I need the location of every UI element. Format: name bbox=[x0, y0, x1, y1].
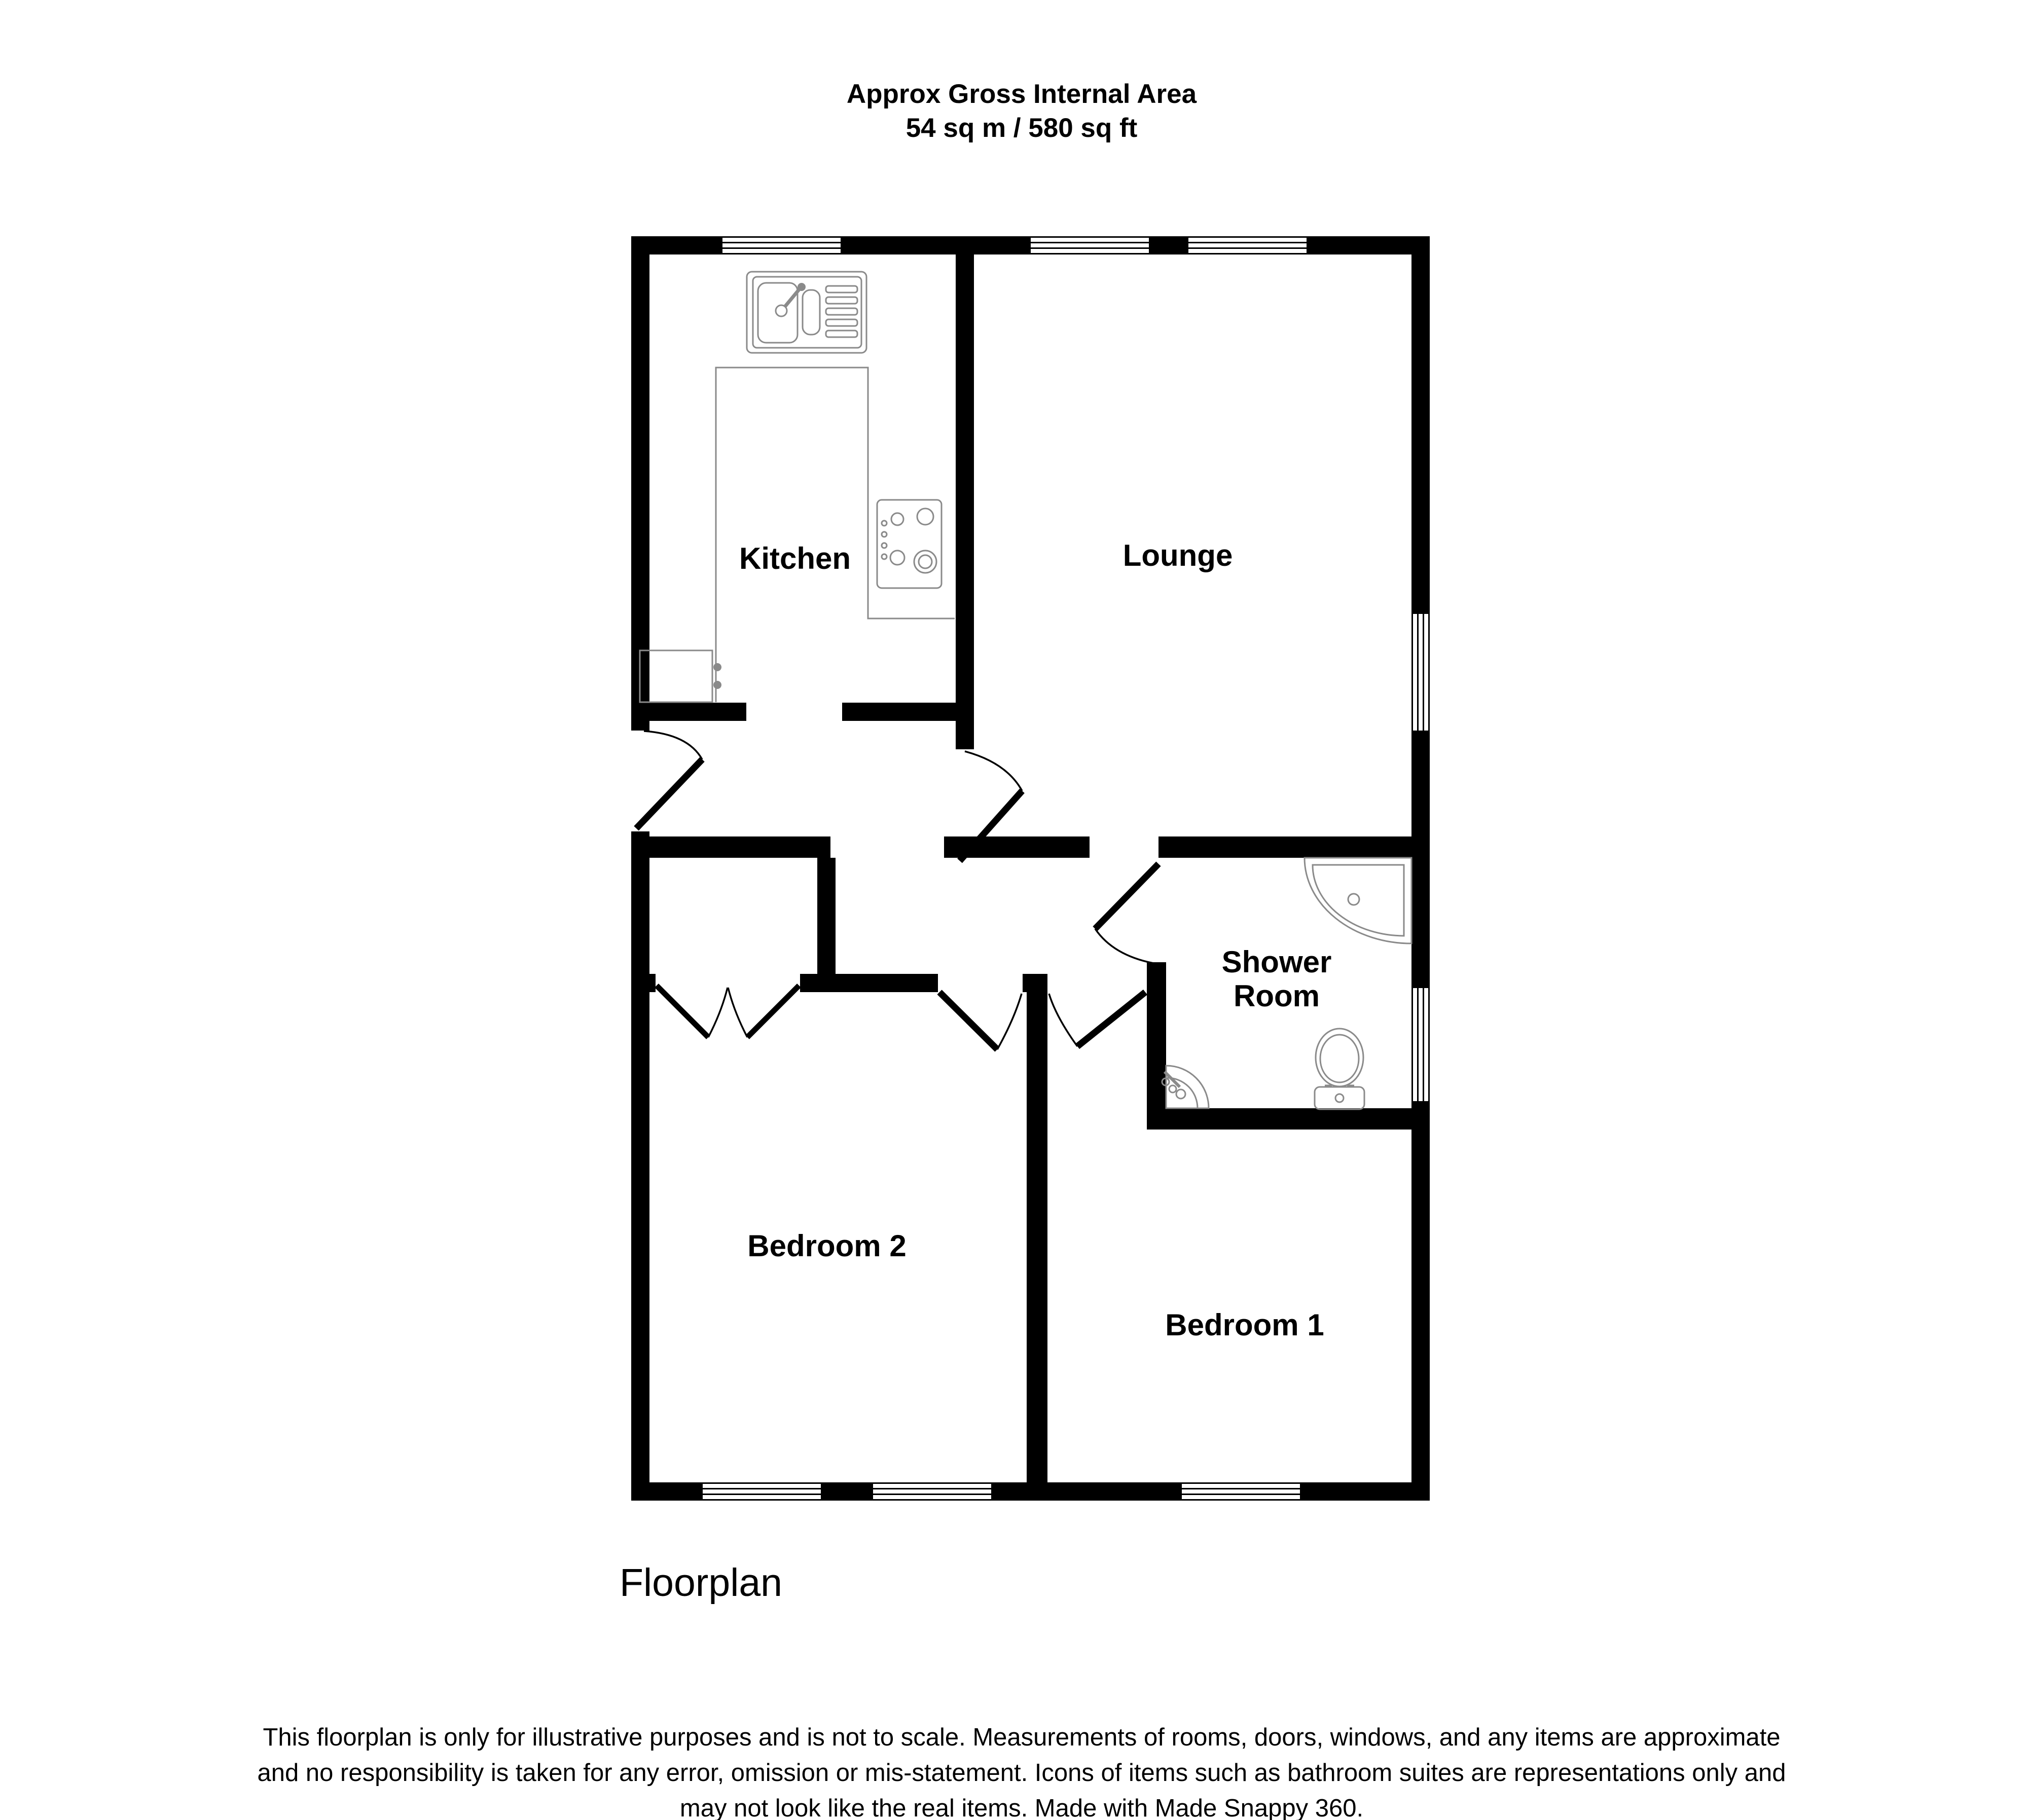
disclaimer-line3: may not look like the real items. Made w… bbox=[0, 1791, 2028, 1820]
bedroom2-door bbox=[939, 992, 1022, 1049]
toilet-icon bbox=[1315, 1029, 1364, 1109]
title-line1: Approx Gross Internal Area bbox=[0, 77, 2028, 111]
shower-room-door bbox=[1095, 864, 1158, 963]
title-line2: 54 sq m / 580 sq ft bbox=[0, 111, 2028, 145]
bedroom2-label: Bedroom 2 bbox=[747, 1229, 906, 1263]
wall-kitchen-bottom-right bbox=[842, 703, 974, 721]
kitchen-label: Kitchen bbox=[739, 541, 851, 575]
bedroom2-window-2 bbox=[873, 1482, 991, 1501]
lounge-window-right bbox=[1411, 614, 1430, 731]
wall-bedroom-divider bbox=[1027, 986, 1047, 1482]
lounge-window-1 bbox=[1031, 236, 1149, 254]
wall-right bbox=[1411, 236, 1430, 1501]
sink-icon bbox=[747, 272, 866, 353]
shower-tray-icon bbox=[1305, 858, 1411, 943]
kitchen-fixtures bbox=[640, 272, 955, 702]
disclaimer-line1: This floorplan is only for illustrative … bbox=[0, 1720, 2028, 1755]
wall-shower-left bbox=[1147, 962, 1166, 1108]
doors bbox=[636, 731, 1158, 1049]
wall-kitchen-lounge-divider bbox=[956, 236, 974, 749]
shower-window-right bbox=[1411, 988, 1430, 1101]
wall-shower-bottom bbox=[1147, 1108, 1411, 1130]
wall-kitchen-bottom-left bbox=[631, 703, 746, 721]
bedroom1-label: Bedroom 1 bbox=[1165, 1308, 1324, 1342]
floorplan-drawing: Kitchen Lounge Shower Room Bedroom 2 Bed… bbox=[631, 236, 1430, 1501]
interior-walls bbox=[631, 236, 1411, 1482]
floorplan-page: Approx Gross Internal Area 54 sq m / 580… bbox=[0, 0, 2028, 1820]
wall-closet-right bbox=[817, 858, 836, 974]
closet-double-doors bbox=[657, 986, 799, 1037]
lounge-label: Lounge bbox=[1123, 538, 1233, 572]
boiler-unit-icon bbox=[640, 650, 716, 702]
wall-lower-stub-left bbox=[631, 974, 656, 992]
bedroom1-door bbox=[1049, 992, 1145, 1046]
kitchen-window bbox=[722, 236, 841, 254]
corner-basin-icon bbox=[1162, 1066, 1209, 1108]
bedroom1-window bbox=[1182, 1482, 1300, 1501]
lounge-window-2 bbox=[1188, 236, 1307, 254]
wall-hall-upper-left bbox=[631, 836, 830, 858]
bedroom2-window-1 bbox=[703, 1482, 821, 1501]
entrance-door bbox=[636, 731, 702, 828]
floorplan-caption: Floorplan bbox=[620, 1560, 782, 1606]
shower-room-label-line2: Room bbox=[1234, 979, 1320, 1013]
disclaimer-text: This floorplan is only for illustrative … bbox=[0, 1720, 2028, 1820]
wall-lounge-bottom-right bbox=[1158, 836, 1411, 858]
shower-room-label-line1: Shower bbox=[1222, 945, 1332, 979]
wall-left-lower bbox=[631, 831, 649, 1501]
page-title: Approx Gross Internal Area 54 sq m / 580… bbox=[0, 77, 2028, 145]
wall-lower-mid bbox=[800, 974, 938, 992]
disclaimer-line2: and no responsibility is taken for any e… bbox=[0, 1755, 2028, 1791]
hob-icon bbox=[877, 500, 941, 588]
